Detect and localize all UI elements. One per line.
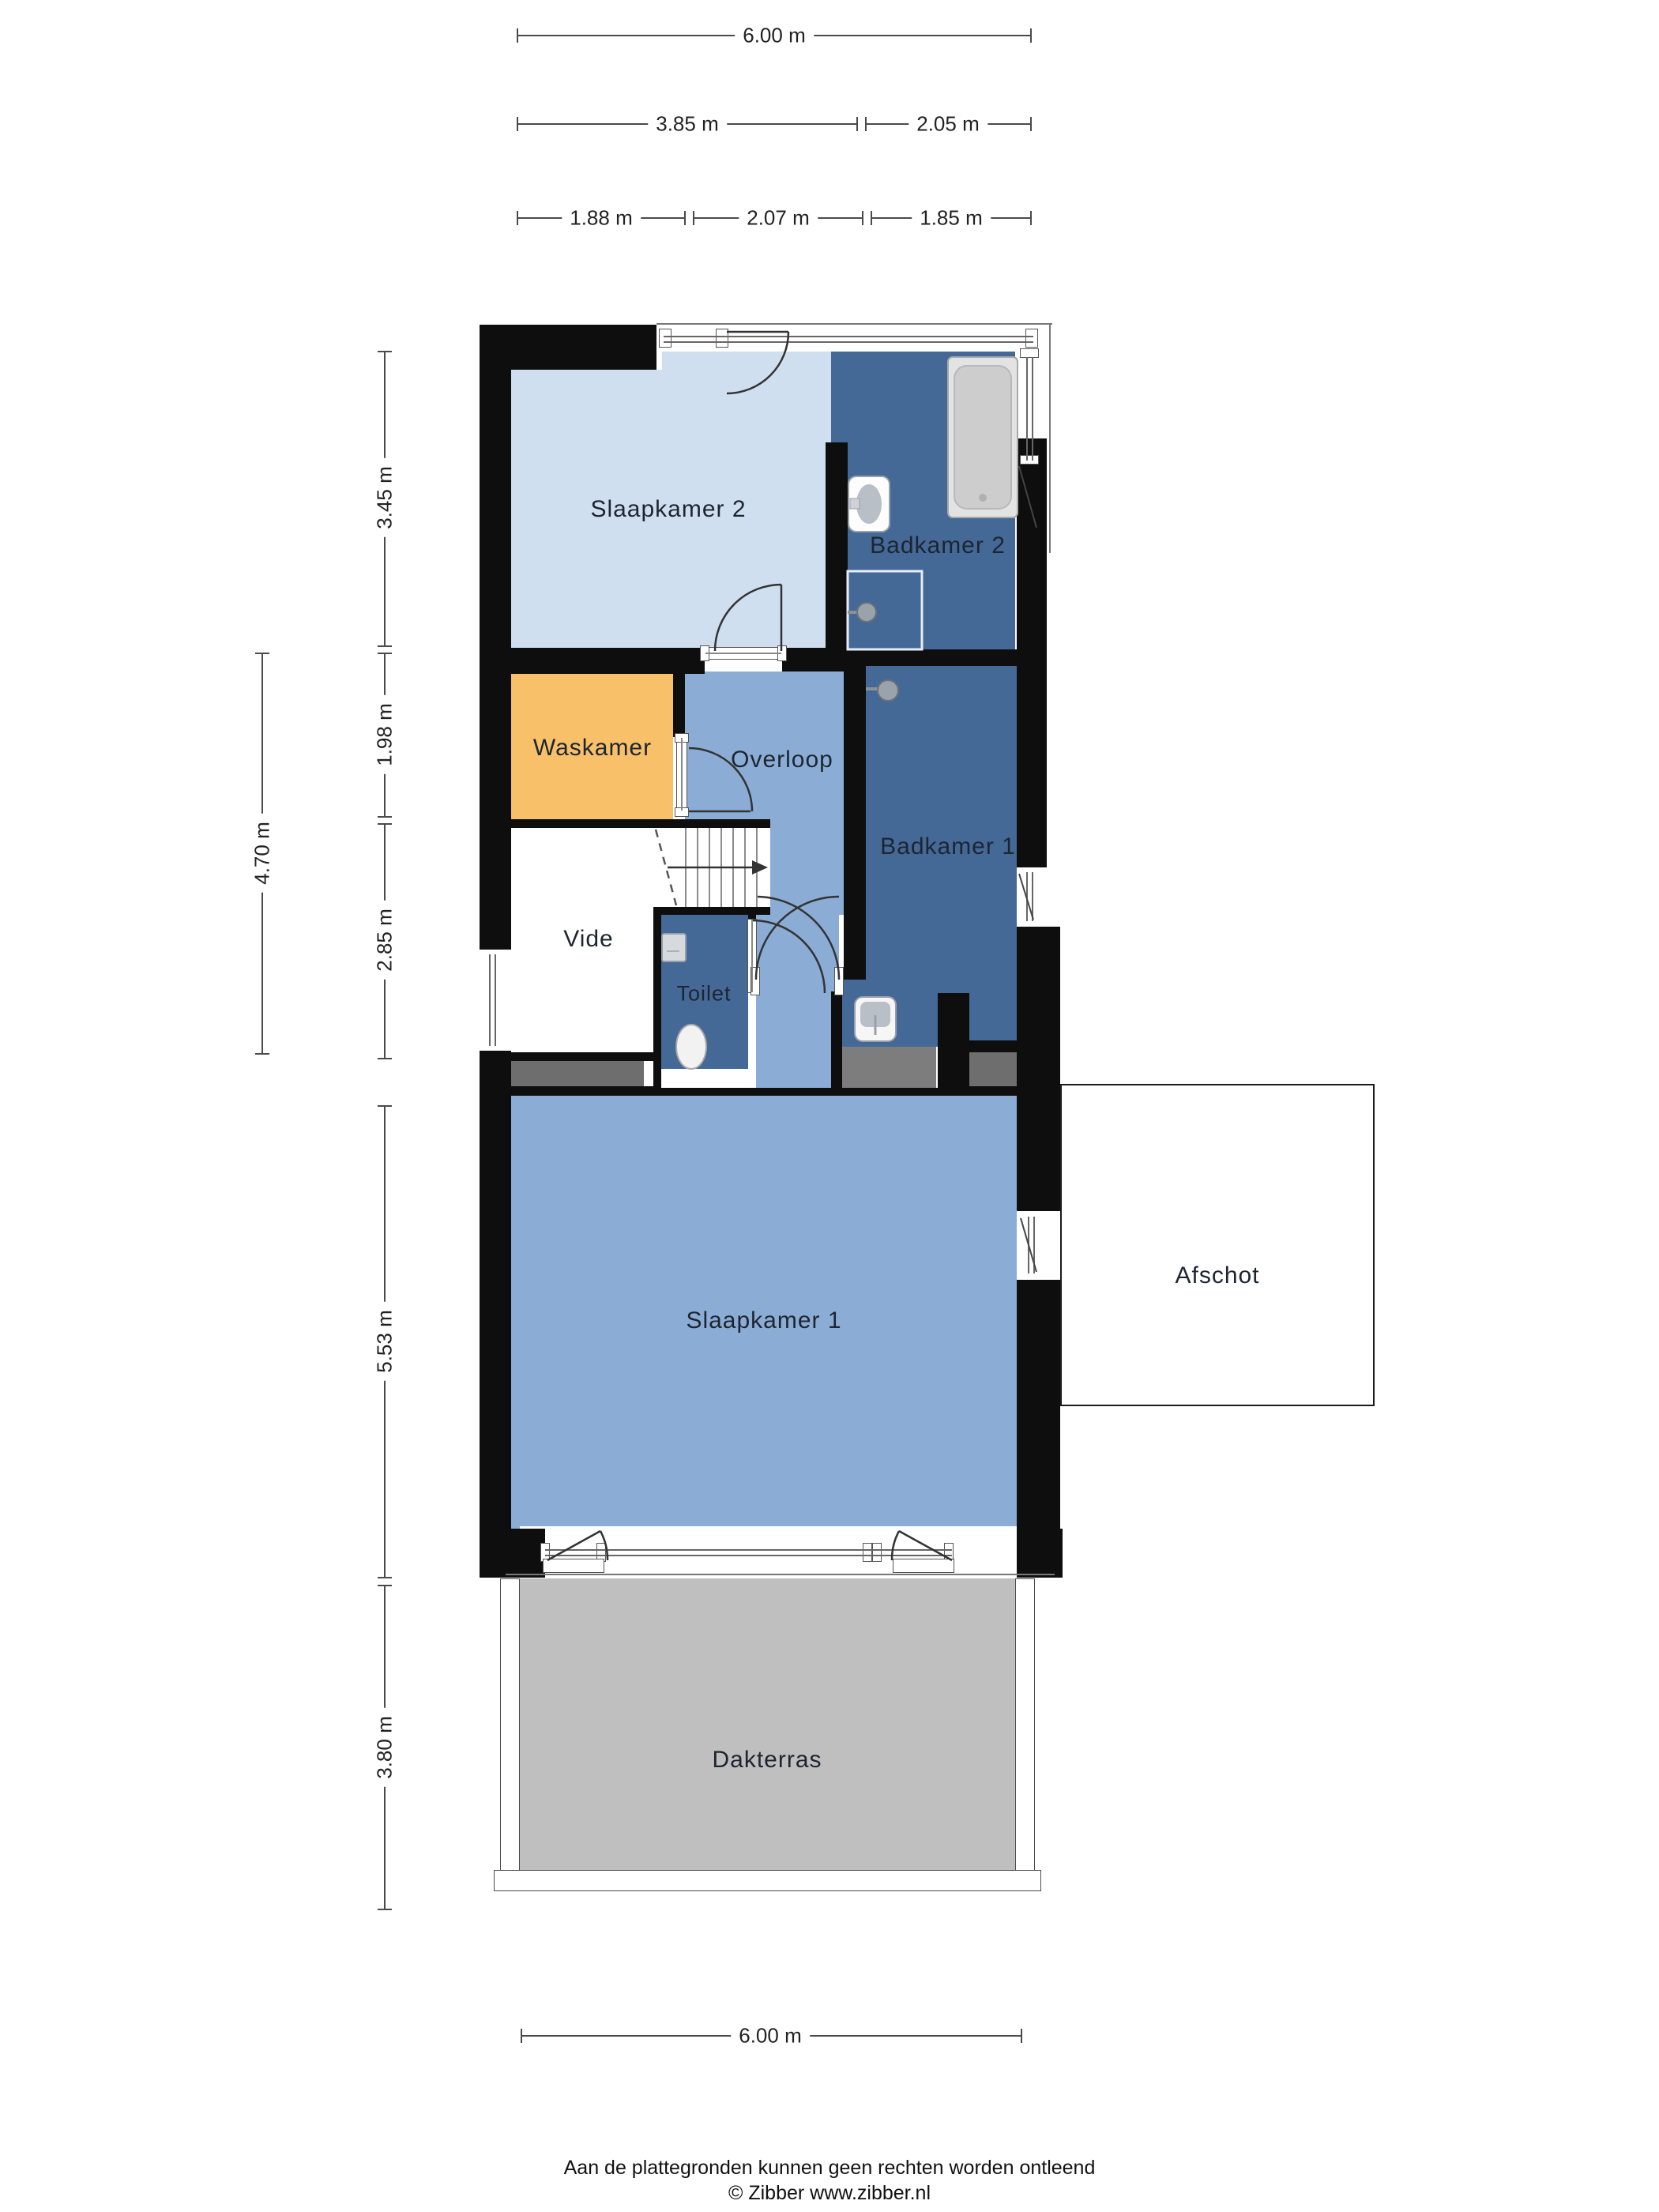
room-label-dakterras: Dakterras <box>712 1747 822 1774</box>
room-label-waskamer: Waskamer <box>533 735 652 762</box>
shower-head-badkamer1 <box>878 680 898 701</box>
dim-top-385: 3.85 m <box>648 112 727 137</box>
stairs-arrow-head <box>752 860 768 875</box>
footer-disclaimer: Aan de plattegronden kunnen geen rechten… <box>0 2157 1659 2180</box>
toilet-sink <box>662 934 686 961</box>
room-label-afschot: Afschot <box>1175 1262 1259 1289</box>
room-label-badkamer-1: Badkamer 1 <box>880 833 1016 860</box>
dim-left-553: 5.53 m <box>373 1302 397 1381</box>
door-arc-toilet <box>752 920 825 993</box>
dim-left-285: 2.85 m <box>373 901 397 980</box>
dim-left-470: 4.70 m <box>250 814 275 893</box>
plan-linework <box>0 0 1659 2212</box>
door-arc-slaapkamer2 <box>715 585 781 651</box>
dim-top-188: 1.88 m <box>562 206 641 231</box>
dim-top-205: 2.05 m <box>908 112 987 137</box>
door-arc-corridor-left <box>756 897 839 980</box>
room-label-vide: Vide <box>563 926 614 953</box>
door-arc-corridor-right <box>756 897 839 980</box>
casement-line <box>1019 466 1036 528</box>
room-label-slaapkamer-2: Slaapkamer 2 <box>590 496 746 523</box>
room-label-toilet: Toilet <box>676 982 731 1006</box>
dimension-lines <box>255 28 1031 2043</box>
bathtub-drain <box>979 494 987 502</box>
sink-basin <box>856 484 882 524</box>
sink-tap <box>850 498 860 509</box>
dim-top-600: 6.00 m <box>735 24 814 48</box>
dim-top-207: 2.07 m <box>739 206 818 231</box>
dim-bottom-600: 6.00 m <box>731 2024 810 2048</box>
toilet-bowl <box>676 1025 706 1069</box>
shower-head-badkamer2 <box>857 603 876 622</box>
room-label-overloop: Overloop <box>731 747 833 773</box>
room-label-badkamer-2: Badkamer 2 <box>870 532 1006 559</box>
room-label-slaapkamer-1: Slaapkamer 1 <box>686 1307 841 1334</box>
door-arc-badkamer2-top <box>727 332 788 393</box>
dim-left-380: 3.80 m <box>373 1708 397 1787</box>
floorplan-canvas: Slaapkamer 2 Badkamer 2 Waskamer Overloo… <box>0 0 1659 2212</box>
dim-left-198: 1.98 m <box>373 695 397 774</box>
bathtub-basin <box>954 366 1011 509</box>
dim-top-185: 1.85 m <box>912 206 991 231</box>
footer-copyright: © Zibber www.zibber.nl <box>0 2182 1659 2205</box>
dim-left-345: 3.45 m <box>373 458 397 537</box>
